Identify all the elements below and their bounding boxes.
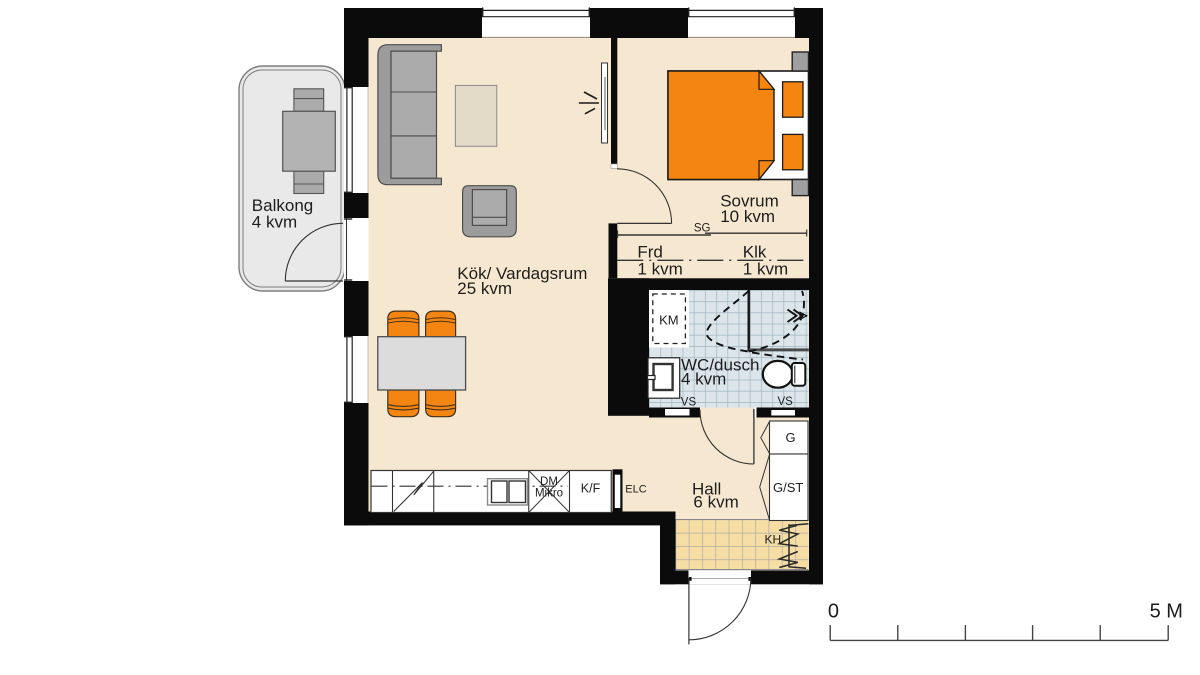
- svg-text:10 kvm: 10 kvm: [720, 207, 775, 226]
- svg-text:SG: SG: [694, 223, 711, 235]
- svg-text:G/ST: G/ST: [773, 480, 803, 495]
- svg-text:VS: VS: [681, 397, 697, 409]
- svg-text:1 kvm: 1 kvm: [743, 259, 788, 278]
- svg-text:4 kvm: 4 kvm: [681, 370, 726, 389]
- svg-text:ELC: ELC: [625, 484, 646, 496]
- svg-text:DM: DM: [540, 476, 558, 488]
- svg-text:1 kvm: 1 kvm: [637, 259, 682, 278]
- svg-text:KH: KH: [765, 533, 782, 547]
- svg-text:K/F: K/F: [581, 482, 601, 496]
- svg-text:4 kvm: 4 kvm: [252, 213, 297, 232]
- svg-text:VS: VS: [778, 396, 794, 408]
- svg-text:25 kvm: 25 kvm: [457, 279, 512, 298]
- svg-text:0: 0: [828, 601, 839, 623]
- svg-text:G: G: [786, 430, 796, 445]
- svg-text:6 kvm: 6 kvm: [693, 493, 738, 512]
- svg-text:5 M: 5 M: [1150, 601, 1183, 623]
- svg-text:KM: KM: [659, 313, 679, 328]
- svg-text:Mikro: Mikro: [535, 487, 563, 499]
